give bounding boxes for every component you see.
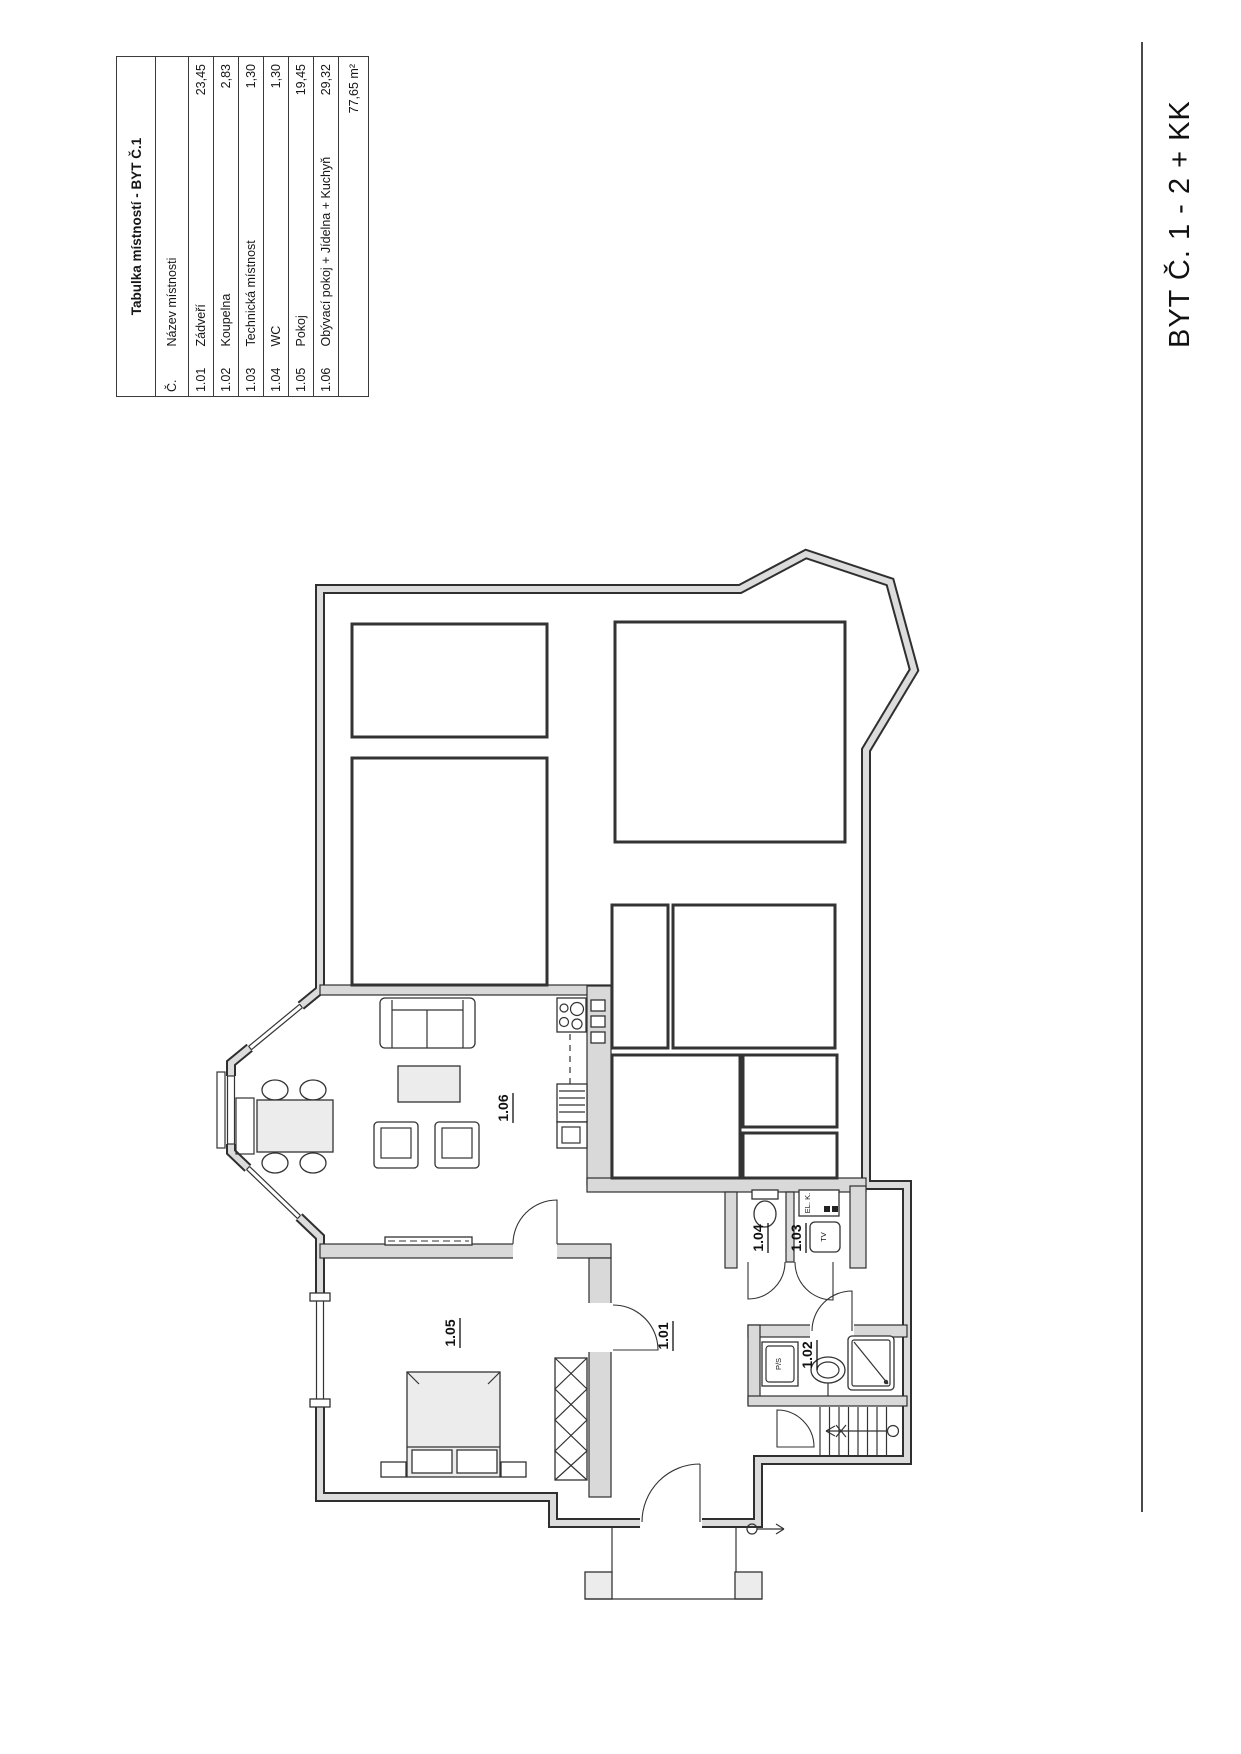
room-area: 19,45 <box>289 57 314 134</box>
room-area: 29,32 <box>314 57 339 134</box>
room-number: 1.04 <box>264 351 289 397</box>
room-number: 1.02 <box>214 351 239 397</box>
room-name: Obývací pokoj + Jídelna + Kuchyň <box>314 134 339 351</box>
shower <box>848 1336 894 1390</box>
table-row: 1.04 WC 1,30 <box>264 57 289 397</box>
sofa <box>380 998 475 1048</box>
table-row: 1.05 Pokoj 19,45 <box>289 57 314 397</box>
drawing-sheet: EL. K. TV P/S <box>0 0 1241 1754</box>
electrical-label: EL. K. <box>803 1193 812 1213</box>
room-number: 1.03 <box>239 351 264 397</box>
sheet-title-block: BYT Č. 1 - 2 + KK <box>1158 48 1202 348</box>
room-area: 2,83 <box>214 57 239 134</box>
washbasin <box>811 1357 845 1396</box>
title-separator-line <box>1141 42 1143 1512</box>
toilet <box>752 1190 778 1227</box>
tv-box: TV <box>810 1222 840 1252</box>
col-header-area <box>156 57 189 134</box>
label-hall: 1.01 <box>655 1322 671 1349</box>
washer-label: P/S <box>774 1358 783 1370</box>
dining-set <box>236 1080 333 1173</box>
label-room: 1.05 <box>442 1319 458 1346</box>
room-name: Technická místnost <box>239 134 264 351</box>
table-row: 1.06 Obývací pokoj + Jídelna + Kuchyň 29… <box>314 57 339 397</box>
col-header-number: Č. <box>156 351 189 397</box>
sideboard <box>385 1237 472 1245</box>
sheet-title: BYT Č. 1 - 2 + KK <box>1158 48 1202 348</box>
room-number: 1.05 <box>289 351 314 397</box>
label-wc: 1.04 <box>750 1224 766 1251</box>
table-row: 1.03 Technická místnost 1,30 <box>239 57 264 397</box>
armchair-right <box>435 1122 479 1168</box>
room-number: 1.01 <box>189 351 214 397</box>
electrical-cabinet: EL. K. <box>799 1190 839 1216</box>
tv-label: TV <box>819 1232 828 1242</box>
armchair-left <box>374 1122 418 1168</box>
table-total-row: 77,65 m² <box>339 57 369 397</box>
room-area: 23,45 <box>189 57 214 134</box>
wardrobe <box>555 1358 587 1480</box>
room-name: WC <box>264 134 289 351</box>
coffee-table <box>398 1066 460 1102</box>
room-name: Pokoj <box>289 134 314 351</box>
table-row: 1.02 Koupelna 2,83 <box>214 57 239 397</box>
col-header-name: Název místnosti <box>156 134 189 351</box>
washing-machine: P/S <box>762 1342 798 1386</box>
label-bathroom: 1.02 <box>799 1341 815 1368</box>
label-technical: 1.03 <box>788 1224 804 1251</box>
bed <box>381 1372 526 1477</box>
room-area: 1,30 <box>264 57 289 134</box>
room-number: 1.06 <box>314 351 339 397</box>
table-row: 1.01 Zádveří 23,45 <box>189 57 214 397</box>
label-living: 1.06 <box>495 1094 511 1121</box>
staircase <box>820 1407 899 1456</box>
room-table: Tabulka místností - BYT Č.1 Č. Název mís… <box>116 56 361 396</box>
room-table-title: Tabulka místností - BYT Č.1 <box>117 57 156 397</box>
room-name: Koupelna <box>214 134 239 351</box>
room-name: Zádveří <box>189 134 214 351</box>
porch <box>585 1524 784 1599</box>
room-area: 1,30 <box>239 57 264 134</box>
total-area: 77,65 m² <box>339 57 369 134</box>
